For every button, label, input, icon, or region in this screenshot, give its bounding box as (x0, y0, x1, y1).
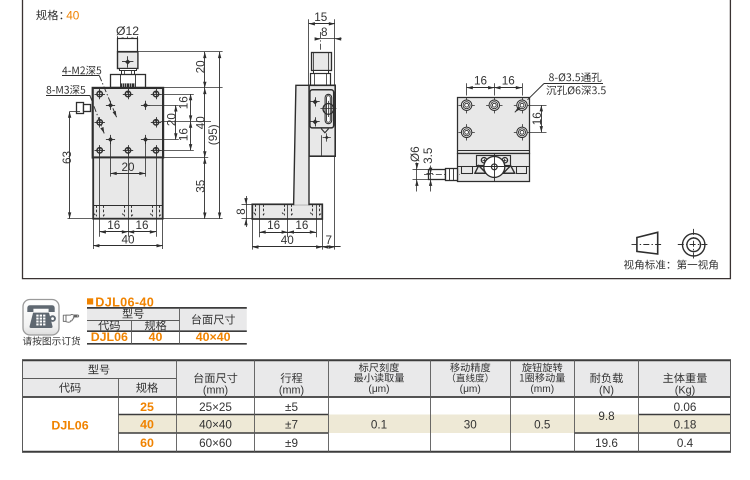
svg-text:19.6: 19.6 (595, 437, 618, 450)
svg-text:7: 7 (326, 234, 333, 247)
svg-text:DJL06: DJL06 (51, 419, 88, 433)
svg-text:(mm): (mm) (279, 384, 304, 396)
svg-text:9.8: 9.8 (598, 410, 614, 423)
svg-text:Ø12: Ø12 (116, 24, 139, 38)
svg-text:40: 40 (140, 417, 154, 431)
svg-text:16: 16 (531, 112, 544, 125)
svg-text:60: 60 (140, 436, 154, 450)
svg-text:40: 40 (121, 233, 135, 246)
svg-text:0.5: 0.5 (534, 418, 551, 431)
svg-text:35: 35 (194, 179, 207, 193)
svg-text:0.1: 0.1 (371, 418, 387, 431)
svg-text:25×25: 25×25 (199, 401, 232, 414)
svg-text:16: 16 (295, 219, 308, 232)
svg-text:40×40: 40×40 (199, 418, 232, 431)
svg-text:40: 40 (194, 116, 207, 130)
svg-text:8: 8 (235, 208, 248, 215)
svg-text:(μm): (μm) (368, 384, 389, 395)
svg-text:Ø6: Ø6 (409, 146, 422, 162)
svg-text:16: 16 (267, 219, 280, 232)
svg-text:(mm): (mm) (203, 384, 228, 396)
svg-text:16: 16 (177, 96, 190, 109)
svg-text:0.18: 0.18 (674, 418, 697, 431)
svg-text:40: 40 (66, 8, 80, 22)
svg-text:3.5: 3.5 (422, 147, 435, 164)
svg-text:(N): (N) (599, 384, 614, 396)
svg-text:0.4: 0.4 (677, 437, 694, 450)
svg-text:(95): (95) (207, 124, 220, 145)
svg-text:(Kg): (Kg) (675, 384, 695, 396)
svg-text:16: 16 (502, 75, 515, 88)
svg-text:16: 16 (474, 75, 487, 88)
svg-text:0.06: 0.06 (674, 401, 697, 414)
svg-text:60×60: 60×60 (199, 437, 232, 450)
svg-text:DJL06: DJL06 (91, 330, 128, 344)
svg-text:40: 40 (149, 330, 163, 344)
svg-text:25: 25 (140, 400, 154, 414)
svg-text:16: 16 (107, 219, 120, 232)
svg-text:±9: ±9 (285, 437, 298, 450)
svg-text:20: 20 (165, 113, 178, 127)
svg-text:40: 40 (281, 234, 295, 247)
svg-text:(mm): (mm) (530, 384, 554, 395)
svg-text:15: 15 (314, 11, 328, 24)
svg-text:8: 8 (321, 26, 328, 39)
svg-text:(μm): (μm) (460, 384, 481, 395)
svg-text:63: 63 (61, 151, 74, 164)
svg-text:40×40: 40×40 (196, 330, 231, 344)
svg-text:±7: ±7 (285, 418, 298, 431)
svg-text:20: 20 (194, 60, 207, 74)
svg-text:16: 16 (177, 128, 190, 141)
svg-text:16: 16 (135, 219, 148, 232)
svg-text:30: 30 (464, 418, 478, 431)
svg-text:±5: ±5 (285, 401, 298, 414)
svg-text:20: 20 (121, 161, 135, 174)
